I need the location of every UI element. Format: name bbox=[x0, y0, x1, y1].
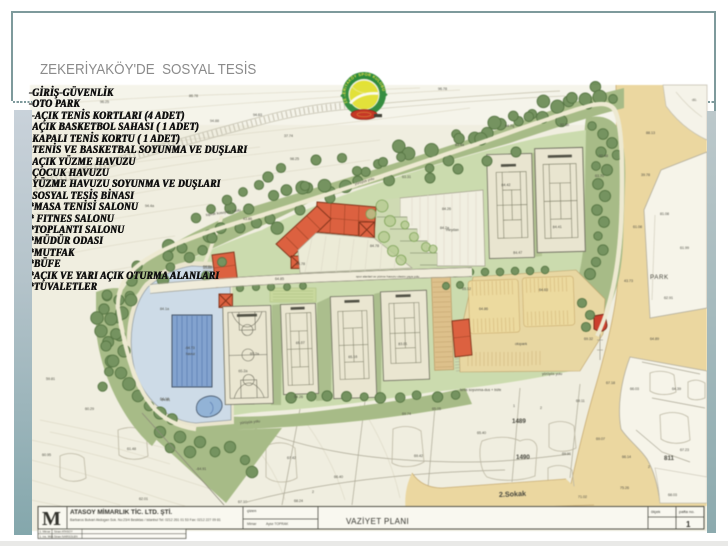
svg-text:Sinan NARGÜLEN: Sinan NARGÜLEN bbox=[54, 534, 77, 538]
svg-text:1. ins. Müh.: 1. ins. Müh. bbox=[40, 534, 55, 538]
